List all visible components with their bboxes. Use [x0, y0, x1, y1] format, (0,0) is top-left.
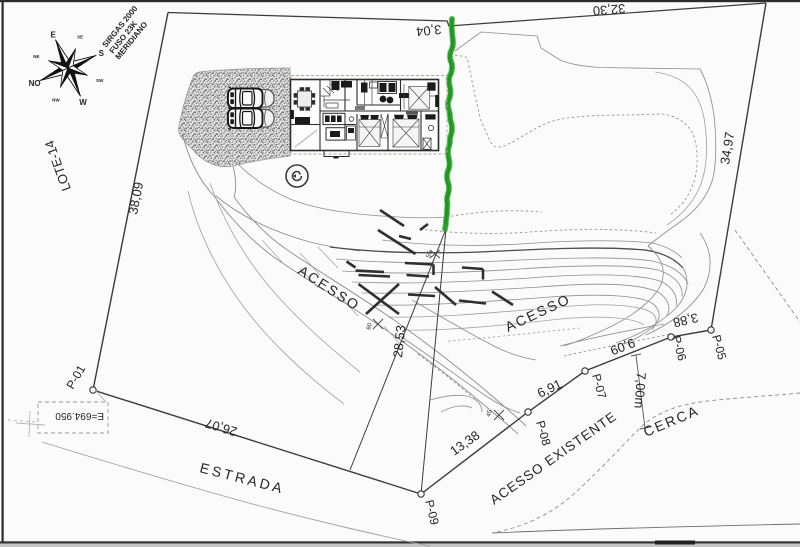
svg-text:SE: SE [77, 34, 83, 39]
svg-text:32,30: 32,30 [592, 1, 626, 19]
svg-text:NO: NO [29, 79, 41, 88]
svg-text:7,00m: 7,00m [631, 372, 648, 409]
svg-text:S: S [99, 49, 105, 58]
svg-text:NE: NE [33, 54, 39, 59]
svg-text:NW: NW [52, 98, 60, 103]
svg-text:W: W [79, 98, 87, 107]
svg-text:E=694.950: E=694.950 [55, 410, 104, 421]
svg-text:SW: SW [96, 78, 104, 83]
svg-text:E: E [50, 31, 56, 40]
svg-text:3,04: 3,04 [416, 22, 443, 39]
